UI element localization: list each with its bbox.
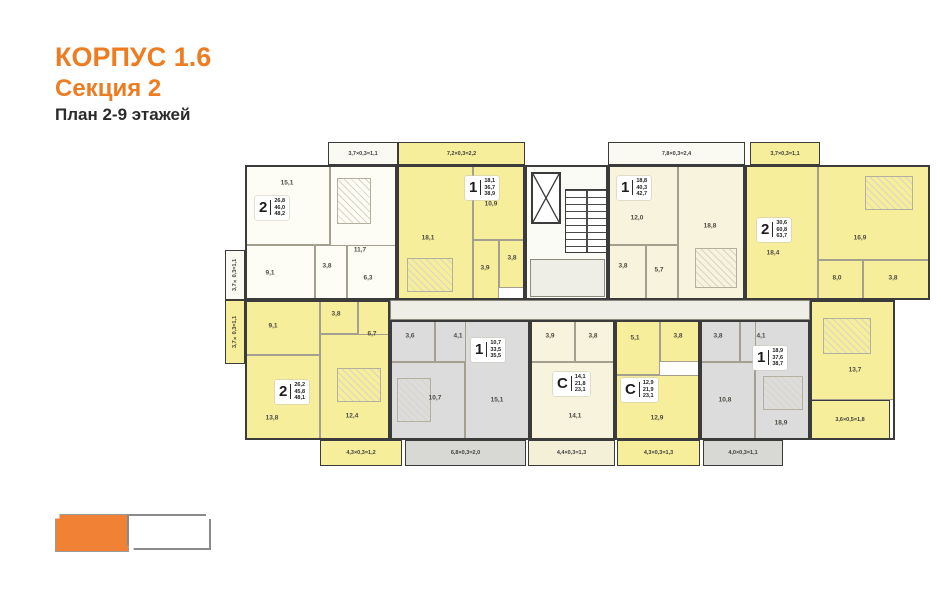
room [575, 320, 615, 362]
apartment-type: 2 [279, 384, 291, 399]
room-area-label: 14,1 [569, 413, 582, 420]
room-area-label: 9,1 [268, 323, 277, 330]
balcony-right-1: 3,6×0,5=1,8 [810, 400, 890, 440]
location-key-current-section [55, 514, 129, 552]
plan-subtitle: План 2-9 этажей [55, 105, 211, 125]
balcony-top-3: 7,8×0,3=2,4 [608, 142, 745, 165]
room-area-label: 11,7 [354, 247, 366, 254]
balcony-top-4: 3,7×0,3=1,1 [750, 142, 820, 165]
bed-furniture [865, 176, 913, 210]
apartment-type: 1 [475, 342, 487, 357]
room-area-label: 10,8 [719, 397, 732, 404]
room-area-label: 9,1 [265, 270, 274, 277]
room-area-label: 3,6 [405, 333, 414, 340]
room-area-label: 10,9 [485, 201, 498, 208]
stair-core [525, 165, 608, 300]
room-area-label: 6,3 [363, 275, 372, 282]
apartment-type: 1 [757, 350, 769, 365]
room [499, 240, 525, 288]
room-area-label: 3,9 [480, 265, 489, 272]
room-area-label: 3,8 [331, 311, 340, 318]
balcony-bottom-5: 4,0×0,3=1,1 [703, 440, 783, 466]
corridor [530, 259, 605, 297]
section-title: Секция 2 [55, 75, 211, 103]
building-title: КОРПУС 1.6 [55, 42, 211, 73]
room-area-label: 8,0 [832, 275, 841, 282]
total-area: 23,1 [575, 387, 586, 394]
total-area: 48,1 [294, 395, 305, 402]
apartment-type: 1 [621, 180, 633, 195]
bed-furniture [407, 258, 453, 292]
room-area-label: 4,1 [453, 333, 462, 340]
total-area: 35,5 [490, 353, 501, 360]
bed-furniture [695, 248, 737, 288]
total-area: 23,1 [643, 393, 654, 400]
title-block: КОРПУС 1.6 Секция 2 План 2-9 этажей [55, 42, 211, 124]
apartment-badge: 2 26,2 45,8 48,1 [275, 380, 309, 404]
balcony-bottom-4: 4,3×0,3=1,3 [617, 440, 700, 466]
room [660, 320, 700, 362]
balcony-top-2: 7,2×0,3=2,2 [398, 142, 525, 165]
elevator-shaft [531, 172, 561, 224]
room-area-label: 3,8 [713, 333, 722, 340]
room-area-label: 3,8 [673, 333, 682, 340]
balcony-top-1: 3,7×0,3=1,1 [328, 142, 398, 165]
apartment-badge: 1 18,1 36,7 38,9 [465, 176, 499, 200]
room-area-label: 15,1 [281, 180, 294, 187]
apartment-type: 2 [761, 222, 773, 237]
room-area-label: 3,8 [618, 263, 627, 270]
total-area: 42,7 [636, 191, 647, 198]
balcony-bottom-3: 4,4×0,3=1,3 [528, 440, 615, 466]
apartment-badge: 1 10,7 33,5 35,5 [471, 338, 505, 362]
room-area-label: 5,7 [654, 267, 663, 274]
apartment-badge: 1 18,8 40,3 42,7 [617, 176, 651, 200]
apartment-badge: 2 30,6 60,8 63,7 [757, 218, 791, 242]
staircase [565, 189, 607, 253]
elevator-cross-icon [533, 174, 559, 222]
room-area-label: 3,8 [588, 333, 597, 340]
room-area-label: 12,0 [631, 215, 644, 222]
room-area-label: 6,7 [367, 331, 376, 338]
room-area-label: 12,4 [346, 413, 359, 420]
room [390, 320, 435, 362]
room [700, 320, 740, 362]
bed-furniture [823, 318, 871, 354]
room-area-label: 16,9 [854, 235, 867, 242]
balcony-bottom-1: 4,3×0,3=1,2 [320, 440, 402, 466]
room-area-label: 18,1 [422, 235, 435, 242]
bed-furniture [337, 178, 371, 224]
apartment-type: 2 [259, 200, 271, 215]
corridor [390, 300, 810, 320]
room-area-label: 10,7 [429, 395, 442, 402]
total-area: 48,2 [274, 211, 285, 218]
bed-furniture [337, 368, 381, 402]
room-area-label: 18,4 [767, 250, 780, 257]
apartment-type: С [625, 382, 640, 397]
apartment-type: 1 [469, 180, 481, 195]
room [245, 245, 315, 300]
room [245, 300, 320, 355]
apartment-badge: 1 18,9 37,6 38,7 [753, 346, 787, 370]
room-area-label: 5,1 [630, 335, 639, 342]
total-area: 38,9 [484, 191, 495, 198]
balcony-left-2: 3,7×0,3=1,1 [225, 300, 245, 364]
room-area-label: 13,7 [849, 367, 862, 374]
total-area: 63,7 [776, 233, 787, 240]
room-area-label: 15,1 [491, 397, 504, 404]
location-key-other-section [127, 514, 211, 550]
bed-furniture [763, 376, 803, 410]
floor-plan: 3,7×0,3=1,1 7,2×0,3=2,2 7,8×0,3=2,4 3,7×… [225, 138, 937, 470]
room [315, 245, 347, 300]
room-area-label: 3,8 [322, 263, 331, 270]
apartment-badge: С 14,1 21,8 23,1 [553, 372, 590, 396]
balcony-left-1: 3,7×0,3=1,1 [225, 250, 245, 300]
room-area-label: 3,8 [888, 275, 897, 282]
room-area-label: 3,9 [545, 333, 554, 340]
bed-furniture [397, 378, 431, 422]
apartment-badge: С 12,9 21,9 23,1 [621, 378, 658, 402]
total-area: 38,7 [772, 361, 783, 368]
room-area-label: 12,9 [651, 415, 664, 422]
room [615, 320, 660, 375]
room-area-label: 18,9 [775, 420, 788, 427]
apartment-type: С [557, 376, 572, 391]
room-area-label: 3,8 [507, 255, 516, 262]
location-key [55, 512, 215, 552]
room [608, 245, 646, 300]
room-area-label: 18,8 [704, 223, 717, 230]
room-area-label: 4,1 [756, 333, 765, 340]
room [530, 320, 575, 362]
floor-plan-page: { "title": { "building": "КОРПУС 1.6", "… [0, 0, 941, 600]
room-area-label: 13,8 [266, 415, 279, 422]
apartment-badge: 2 26,8 46,0 48,2 [255, 196, 289, 220]
balcony-bottom-2: 6,8×0,3=2,0 [405, 440, 526, 466]
